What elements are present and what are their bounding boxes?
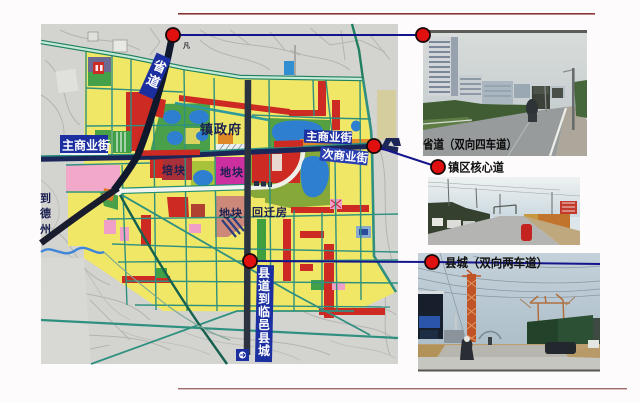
svg-text:县: 县 [258,266,270,280]
svg-text:镇政府: 镇政府 [200,122,242,137]
svg-text:道: 道 [258,278,270,293]
svg-text:县: 县 [258,331,270,345]
svg-text:临: 临 [258,304,270,319]
svg-text:邑: 邑 [258,318,270,332]
svg-text:凡: 凡 [183,42,190,50]
svg-text:回迁房: 回迁房 [252,205,288,219]
svg-text:德: 德 [39,206,51,220]
svg-text:地块: 地块 [219,206,243,220]
svg-text:省道（双向四车道）: 省道（双向四车道） [422,137,517,152]
svg-text:镇区核心道: 镇区核心道 [448,160,504,175]
svg-text:城: 城 [258,343,270,358]
svg-text:到: 到 [40,191,51,205]
svg-text:县城（双向两车道）: 县城（双向两车道） [445,255,548,270]
svg-text:主商业街: 主商业街 [62,138,110,153]
svg-text:到: 到 [258,291,270,306]
svg-text:州: 州 [39,223,51,236]
svg-text:地块: 地块 [220,165,244,179]
svg-text:培块: 培块 [162,163,186,177]
